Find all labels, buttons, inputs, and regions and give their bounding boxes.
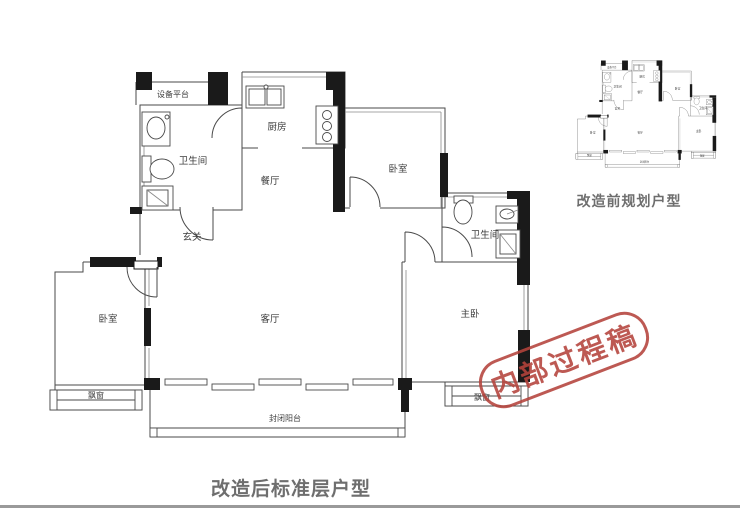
room-label-master-bedroom: 主卧 (460, 308, 480, 320)
door-arcs (127, 108, 472, 297)
room-label-balcony: 封闭阳台 (269, 413, 301, 423)
small-plan-caption: 改造前规划户型 (574, 191, 684, 211)
sliding-door (165, 379, 393, 390)
floorplan-drawing: 设备平台 卫生间 厨房 餐厅 玄关 卧室 卫生间 客厅 卧室 主卧 飘窗 飘窗 … (50, 72, 530, 437)
room-label-bay-window-left: 飘窗 (88, 390, 104, 400)
room-label-bathroom-left: 卫生间 (179, 155, 208, 167)
bathroom-left-fixtures (142, 112, 174, 210)
room-label-bedroom-top-right: 卧室 (388, 163, 407, 175)
room-label-living-room: 客厅 (260, 313, 280, 325)
door-frame (134, 261, 158, 269)
room-label-kitchen: 厨房 (267, 121, 286, 133)
room-label-dining: 餐厅 (260, 175, 280, 187)
bathroom-right-fixtures (454, 196, 520, 258)
room-label-bathroom-right: 卫生间 (471, 229, 500, 241)
kitchen-fixtures (246, 85, 338, 144)
floorplan-page: 设备平台 卫生间 厨房 餐厅 玄关 卧室 卫生间 客厅 卧室 主卧 飘窗 飘窗 … (0, 0, 740, 510)
small-floorplan-before (570, 57, 725, 171)
main-plan-caption: 改造后标准层户型 (206, 474, 376, 501)
room-label-equipment-platform: 设备平台 (157, 89, 189, 99)
room-label-bedroom-left: 卧室 (98, 313, 117, 325)
window-posts (50, 386, 528, 437)
bottom-divider (0, 505, 740, 508)
room-label-foyer: 玄关 (182, 231, 202, 243)
